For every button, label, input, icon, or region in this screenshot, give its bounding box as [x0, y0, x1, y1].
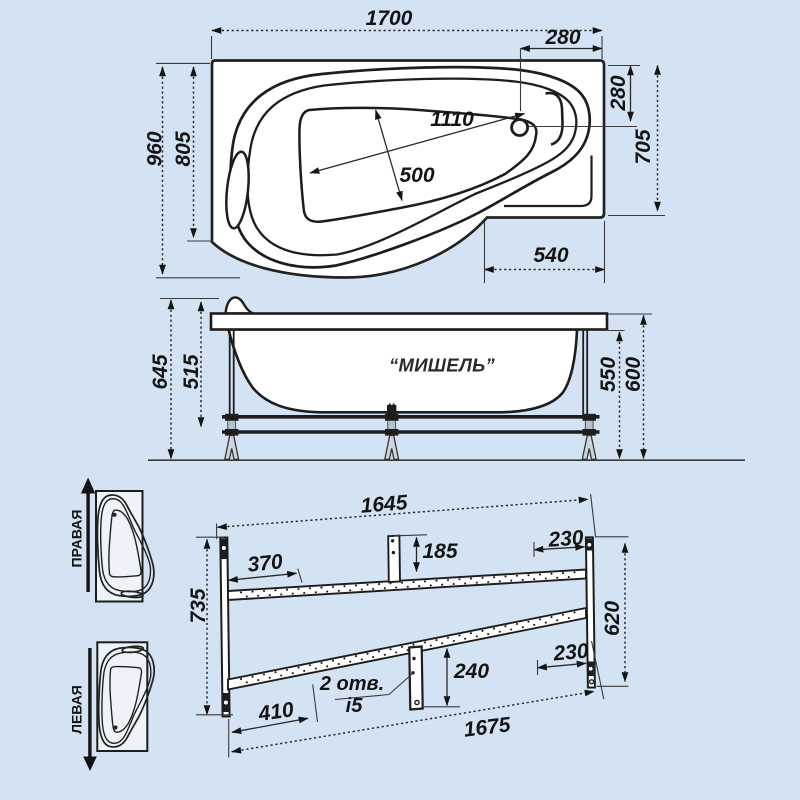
svg-text:240: 240 — [453, 660, 489, 683]
svg-text:645: 645 — [149, 354, 172, 389]
svg-text:280: 280 — [544, 26, 580, 49]
svg-text:735: 735 — [187, 588, 210, 623]
svg-text:185: 185 — [422, 540, 457, 563]
svg-text:600: 600 — [622, 357, 645, 392]
svg-text:960: 960 — [144, 131, 167, 166]
svg-text:620: 620 — [601, 601, 624, 636]
svg-text:1700: 1700 — [366, 7, 413, 30]
svg-text:515: 515 — [180, 354, 203, 389]
svg-text:ЛЕВАЯ: ЛЕВАЯ — [69, 685, 85, 734]
svg-text:230: 230 — [552, 639, 590, 665]
svg-text:230: 230 — [547, 526, 585, 551]
svg-text:370: 370 — [246, 550, 284, 577]
svg-text:500: 500 — [399, 164, 434, 187]
svg-text:2 отв.: 2 отв. — [319, 673, 384, 695]
svg-text:“МИШЕЛЬ”: “МИШЕЛЬ” — [389, 355, 496, 376]
svg-text:805: 805 — [172, 131, 195, 166]
svg-text:1645: 1645 — [360, 491, 409, 518]
svg-text:1110: 1110 — [430, 108, 474, 131]
svg-text:550: 550 — [597, 357, 620, 392]
svg-text:ПРАВАЯ: ПРАВАЯ — [69, 510, 85, 568]
svg-text:705: 705 — [632, 129, 655, 164]
svg-text:280: 280 — [607, 75, 630, 111]
svg-text:540: 540 — [533, 244, 568, 267]
